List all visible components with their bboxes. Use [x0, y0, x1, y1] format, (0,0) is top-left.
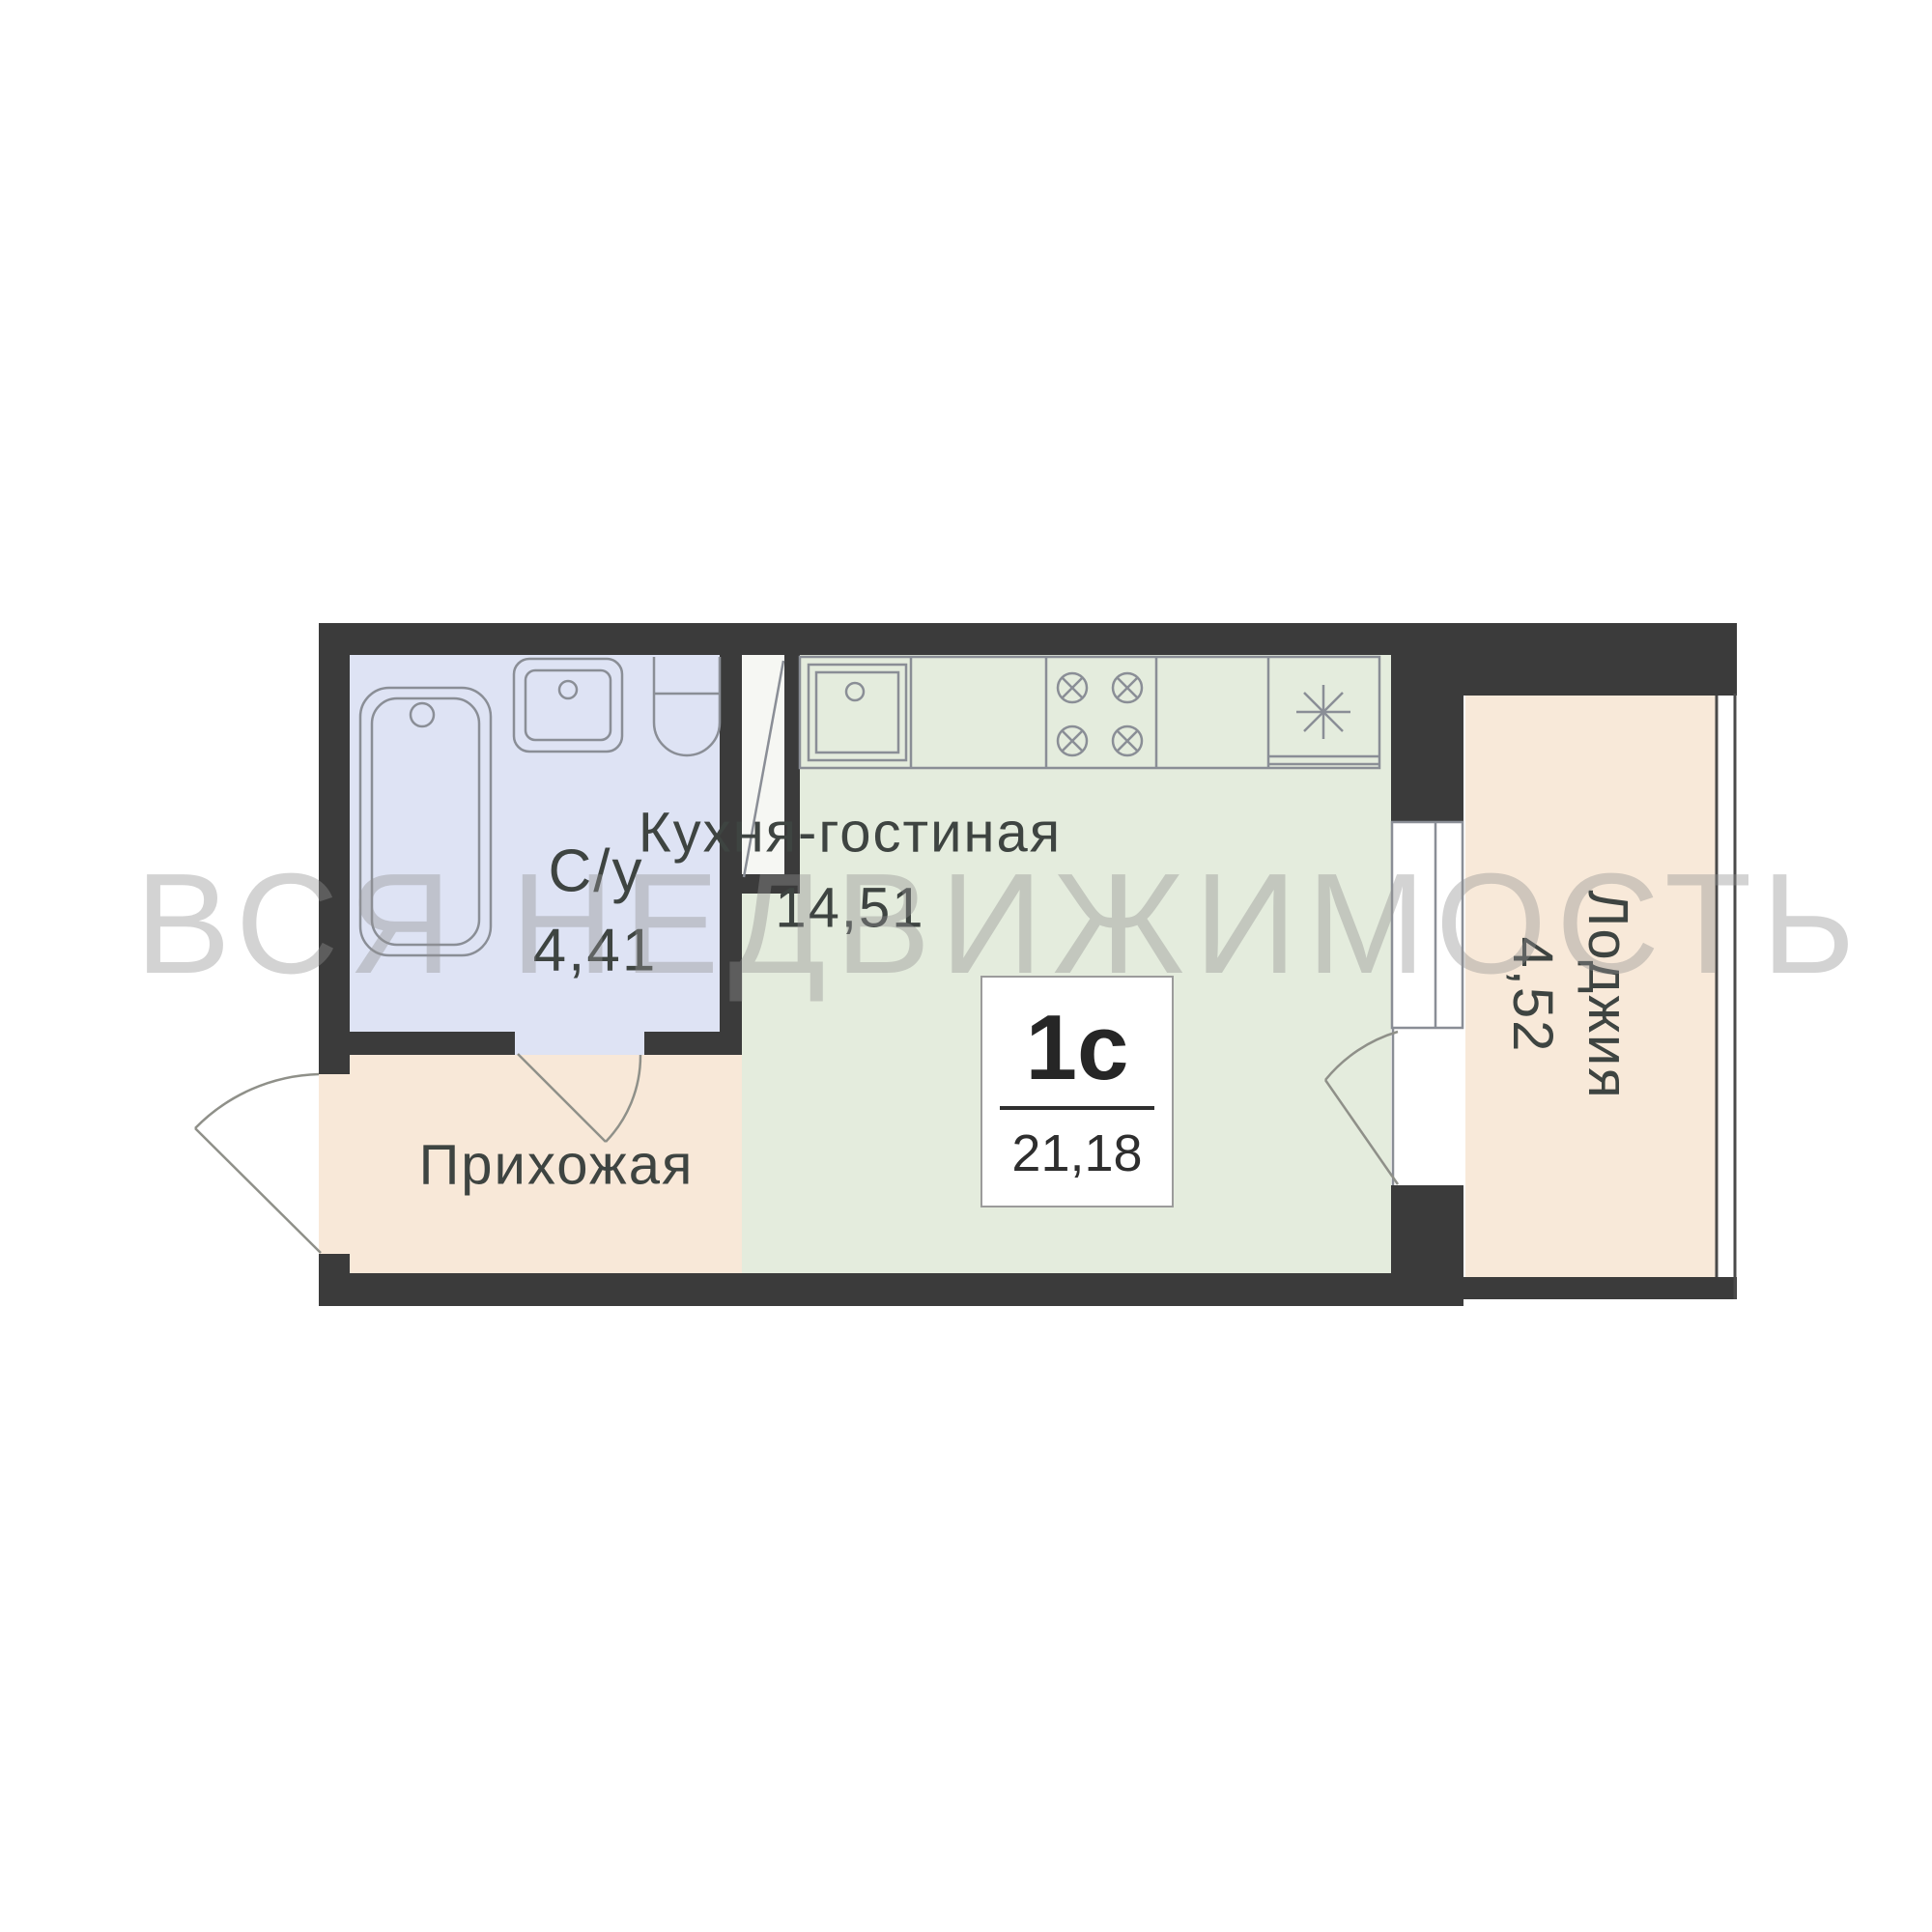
floor-plan: Кухня-гостиная 14,51 С/у 4,41 Прихожая Л… — [0, 0, 1932, 1932]
unit-total-area: 21,18 — [1011, 1123, 1142, 1183]
unit-divider — [1000, 1106, 1154, 1110]
unit-info-badge: 1с 21,18 — [980, 976, 1174, 1207]
hallway-label: Прихожая — [419, 1133, 695, 1198]
kitchen-sink-icon — [809, 665, 906, 760]
fridge-icon — [1268, 685, 1379, 764]
entrance-door-icon — [195, 1074, 321, 1253]
bathroom-sink-icon — [514, 659, 622, 752]
balcony-door-icon — [1325, 1032, 1398, 1184]
bathroom-door-icon — [518, 1054, 640, 1142]
stove-icon — [1058, 673, 1142, 755]
unit-type: 1с — [1026, 1000, 1129, 1097]
toilet-icon — [654, 657, 720, 755]
watermark: ВСЯ НЕДВИЖИМОСТЬ — [135, 842, 1806, 1007]
